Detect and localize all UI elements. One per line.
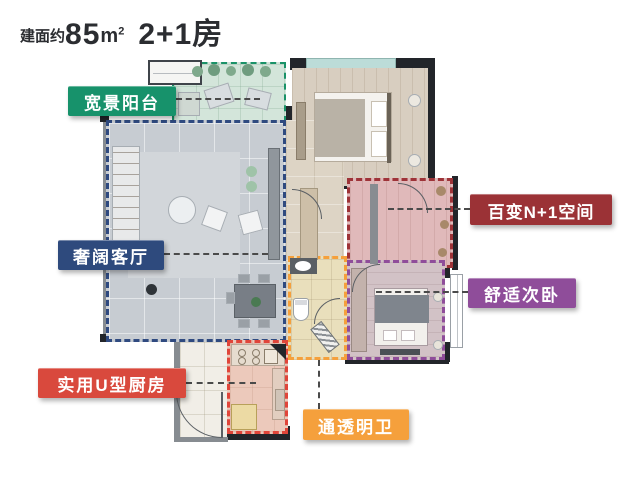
kitchen-corner-shelf bbox=[270, 344, 286, 360]
title-unit: m2 bbox=[100, 25, 124, 50]
leader-secondary-bedroom bbox=[376, 291, 468, 293]
n1-plant bbox=[440, 220, 449, 229]
secondary-bed bbox=[374, 288, 428, 346]
dining-chair bbox=[258, 319, 270, 328]
dining-table bbox=[234, 284, 276, 318]
title-suffix: 2+1房 bbox=[138, 20, 223, 50]
balcony-plant bbox=[260, 66, 271, 77]
balcony-plant bbox=[226, 66, 236, 76]
secondary-nightstand bbox=[433, 292, 443, 302]
master-nightstand bbox=[408, 94, 421, 107]
leader-bathroom bbox=[318, 360, 320, 409]
green-pouf bbox=[246, 166, 257, 177]
label-kitchen: 实用U型厨房 bbox=[38, 368, 186, 398]
kitchen-side-counter bbox=[272, 368, 285, 420]
balcony-plant bbox=[208, 64, 220, 76]
kitchen-fridge bbox=[231, 404, 257, 430]
entry-door-leaf bbox=[221, 392, 223, 438]
master-bed bbox=[314, 92, 392, 162]
label-n-plus-1: 百变N+1空间 bbox=[470, 194, 612, 225]
label-balcony: 宽景阳台 bbox=[68, 86, 176, 116]
tv-cabinet bbox=[268, 148, 280, 260]
n1-partition bbox=[370, 184, 378, 264]
title-prefix: 建面约 bbox=[20, 25, 65, 50]
n1-plant bbox=[436, 186, 446, 196]
green-pouf bbox=[246, 181, 257, 192]
floor-lamp bbox=[146, 284, 157, 295]
page-title: 建面约 85 m2 2+1房 bbox=[20, 10, 223, 50]
dining-chair bbox=[238, 319, 250, 328]
title-area: 85 bbox=[65, 20, 100, 50]
bed-bench bbox=[380, 349, 420, 355]
dining-chair bbox=[238, 274, 250, 283]
leader-balcony bbox=[176, 98, 260, 100]
secondary-bedroom-bay-window bbox=[450, 274, 463, 348]
coffee-table bbox=[168, 196, 196, 224]
leader-living-room bbox=[164, 253, 268, 255]
secondary-nightstand bbox=[433, 340, 443, 350]
label-secondary-bedroom: 舒适次卧 bbox=[468, 278, 576, 308]
toilet bbox=[293, 298, 309, 321]
floorplan-page: 建面约 85 m2 2+1房 bbox=[0, 0, 633, 495]
balcony-plant bbox=[192, 66, 203, 77]
wall-master-right bbox=[428, 58, 435, 190]
label-bathroom: 通透明卫 bbox=[303, 409, 409, 440]
label-living-room: 奢阔客厅 bbox=[58, 240, 164, 270]
balcony-plant bbox=[242, 64, 254, 76]
master-tv-unit bbox=[296, 102, 306, 160]
dining-chair bbox=[258, 274, 270, 283]
master-nightstand bbox=[408, 154, 421, 167]
n1-plant bbox=[438, 248, 447, 257]
leader-kitchen bbox=[186, 382, 256, 384]
dining-chair bbox=[226, 292, 235, 304]
balcony-planter-box bbox=[178, 92, 200, 116]
leader-n-plus-1 bbox=[388, 208, 470, 210]
bathroom-vanity bbox=[290, 258, 317, 274]
